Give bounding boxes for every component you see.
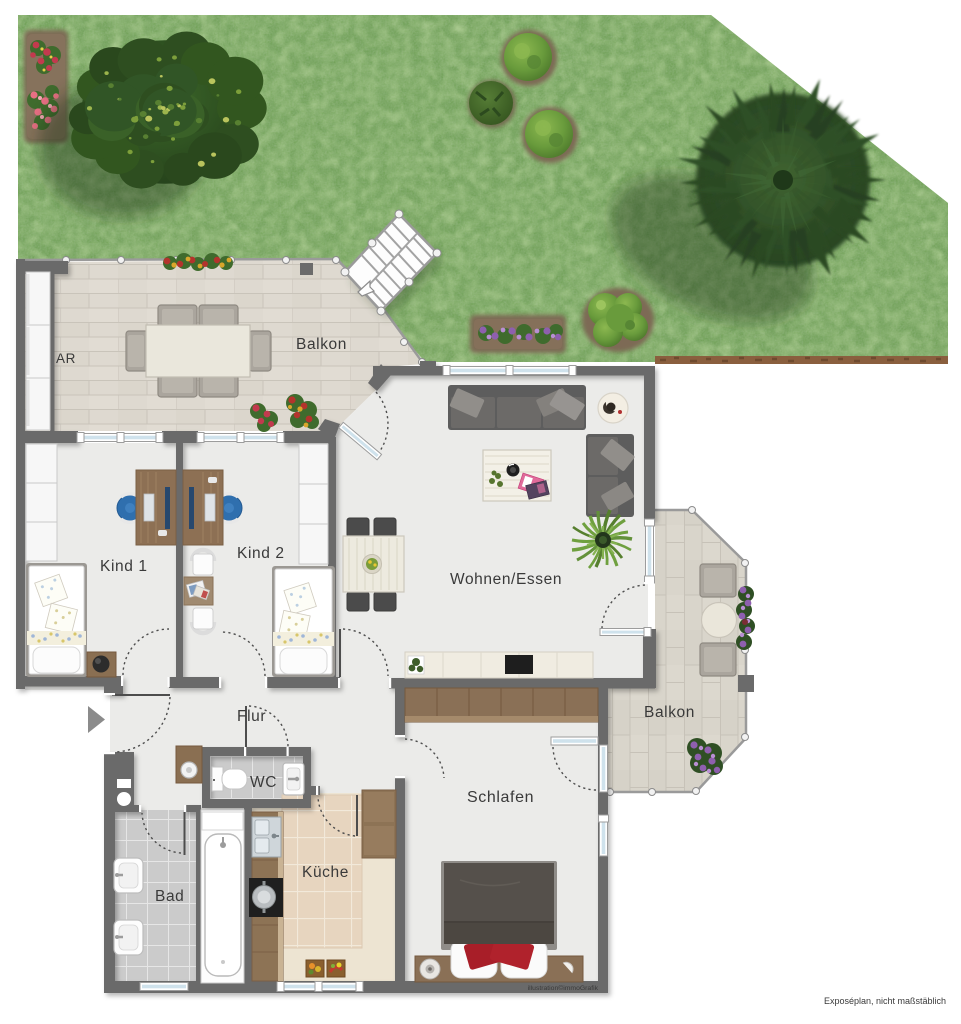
svg-text:Schlafen: Schlafen — [467, 789, 534, 806]
svg-text:Balkon: Balkon — [296, 336, 347, 353]
svg-text:illustration©immoGrafik: illustration©immoGrafik — [528, 984, 599, 992]
svg-text:Küche: Küche — [302, 864, 349, 881]
svg-text:Bad: Bad — [155, 888, 184, 905]
svg-text:AR: AR — [56, 351, 76, 366]
svg-text:Flur: Flur — [237, 708, 266, 725]
svg-text:Kind 1: Kind 1 — [100, 558, 148, 575]
svg-text:Kind 2: Kind 2 — [237, 545, 285, 562]
svg-text:WC: WC — [250, 774, 277, 791]
svg-text:Exposéplan, nicht maßstäblich: Exposéplan, nicht maßstäblich — [824, 996, 946, 1006]
svg-text:Wohnen/Essen: Wohnen/Essen — [450, 571, 562, 588]
svg-text:Balkon: Balkon — [644, 704, 695, 721]
